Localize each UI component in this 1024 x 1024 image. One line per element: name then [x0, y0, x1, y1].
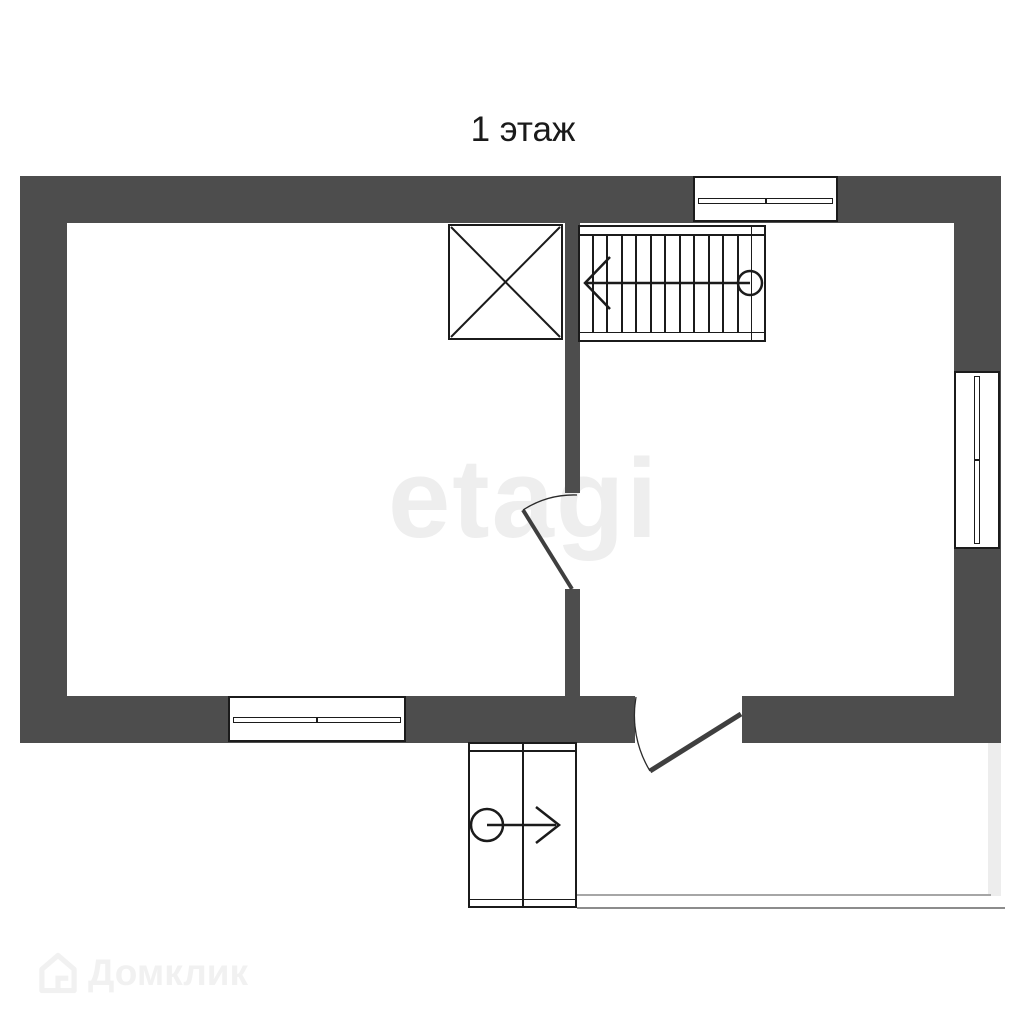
stair-tread: [621, 235, 623, 332]
watermark-domclick: Домклик: [36, 950, 248, 996]
exterior-door-leaf: [650, 714, 741, 771]
stair-tread: [693, 235, 695, 332]
terrace-line-lower: [577, 907, 1005, 909]
window-top-glass: [698, 198, 833, 204]
stair-tread: [592, 235, 594, 332]
window-right: [954, 371, 1000, 549]
window-right-glass: [974, 376, 980, 544]
window-top: [693, 176, 838, 222]
entrance-porch: [468, 742, 577, 908]
stair-tread: [722, 235, 724, 332]
stair-treads: [578, 235, 752, 332]
stair-tread: [606, 235, 608, 332]
wall-bottom-right-segment: [742, 696, 1001, 743]
window-bottom: [228, 696, 406, 742]
wall-top: [20, 176, 1001, 223]
stair-tread: [708, 235, 710, 332]
watermark-domclick-text: Домклик: [88, 952, 248, 994]
floor-title: 1 этаж: [423, 110, 623, 150]
domclick-house-icon: [36, 950, 80, 996]
terrace-right-edge: [988, 743, 1001, 896]
stair-tread: [679, 235, 681, 332]
window-right-divider: [974, 459, 980, 461]
partition-wall-lower: [565, 589, 580, 696]
floorplan-canvas: 1 этаж etagi: [0, 0, 1024, 1024]
porch-middle-divider: [522, 744, 524, 906]
stair-tread: [664, 235, 666, 332]
terrace-line-upper: [577, 894, 991, 896]
window-bottom-divider: [316, 717, 318, 723]
stair-tread: [635, 235, 637, 332]
watermark-etagi: etagi: [388, 443, 659, 555]
exterior-door-swing-arc: [634, 697, 650, 771]
shaft-box: [448, 224, 563, 340]
stair-tread: [737, 235, 739, 332]
window-bottom-glass: [233, 717, 401, 723]
wall-left: [20, 176, 67, 743]
stair-tread: [650, 235, 652, 332]
window-top-divider: [765, 198, 767, 204]
